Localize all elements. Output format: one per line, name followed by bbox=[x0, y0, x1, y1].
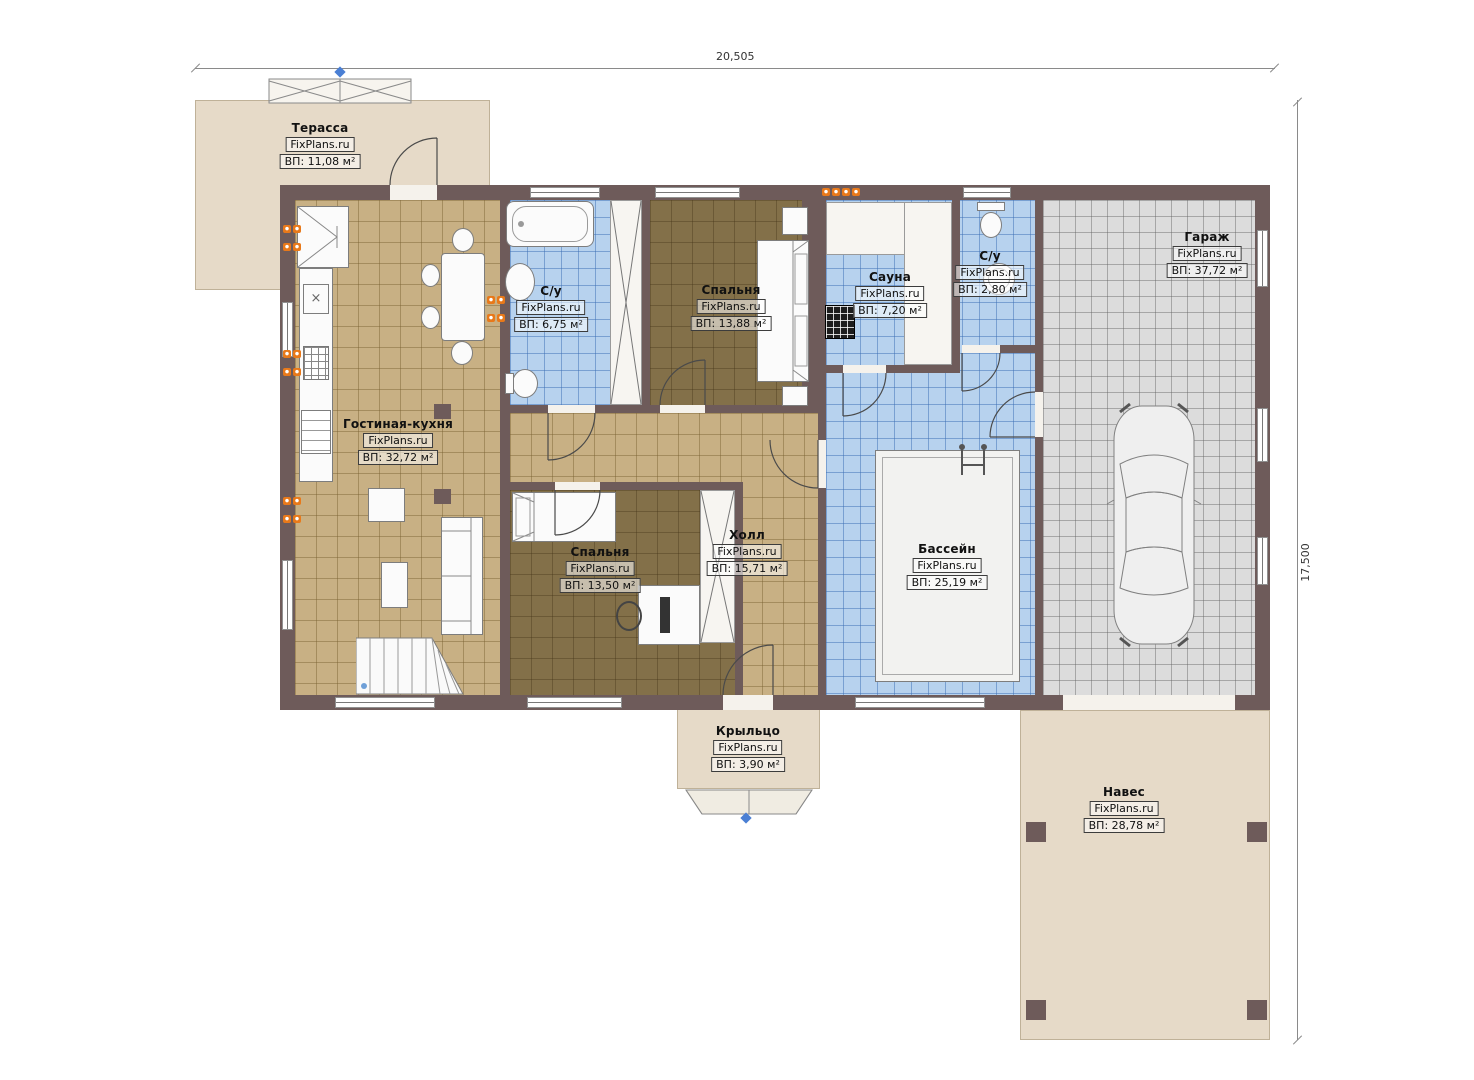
label-bathroom-small: С/у FixPlans.ru ВП: 2,80 м² bbox=[953, 250, 1027, 297]
room-name: С/у bbox=[979, 250, 1001, 263]
room-name: Спальня bbox=[571, 546, 630, 559]
room-area: ВП: 6,75 м² bbox=[514, 317, 588, 332]
room-area: ВП: 11,08 м² bbox=[280, 154, 361, 169]
outlet-marker bbox=[487, 314, 505, 322]
room-area: ВП: 37,72 м² bbox=[1167, 263, 1248, 278]
brand-tag: FixPlans.ru bbox=[516, 300, 585, 315]
brand-tag: FixPlans.ru bbox=[565, 561, 634, 576]
room-name: Терасса bbox=[292, 122, 349, 135]
outlet-marker bbox=[283, 243, 301, 251]
label-terrace: Терасса FixPlans.ru ВП: 11,08 м² bbox=[280, 122, 361, 169]
outlet-marker bbox=[283, 515, 301, 523]
label-living-kitchen: Гостиная-кухня FixPlans.ru ВП: 32,72 м² bbox=[343, 418, 453, 465]
label-pool: Бассейн FixPlans.ru ВП: 25,19 м² bbox=[907, 543, 988, 590]
room-name: Бассейн bbox=[918, 543, 976, 556]
room-area: ВП: 7,20 м² bbox=[853, 303, 927, 318]
outlet-marker bbox=[283, 368, 301, 376]
room-area: ВП: 32,72 м² bbox=[358, 450, 439, 465]
outlet-marker bbox=[487, 296, 505, 304]
brand-tag: FixPlans.ru bbox=[912, 558, 981, 573]
brand-tag: FixPlans.ru bbox=[363, 433, 432, 448]
label-sauna: Сауна FixPlans.ru ВП: 7,20 м² bbox=[853, 271, 927, 318]
room-area: ВП: 15,71 м² bbox=[707, 561, 788, 576]
label-bedroom-bottom: Спальня FixPlans.ru ВП: 13,50 м² bbox=[560, 546, 641, 593]
brand-tag: FixPlans.ru bbox=[1172, 246, 1241, 261]
label-hall: Холл FixPlans.ru ВП: 15,71 м² bbox=[707, 529, 788, 576]
outlet-marker bbox=[283, 497, 301, 505]
outlet-marker bbox=[283, 350, 301, 358]
brand-tag: FixPlans.ru bbox=[285, 137, 354, 152]
room-name: Сауна bbox=[869, 271, 911, 284]
room-name: Гараж bbox=[1184, 231, 1229, 244]
room-area: ВП: 28,78 м² bbox=[1084, 818, 1165, 833]
label-garage: Гараж FixPlans.ru ВП: 37,72 м² bbox=[1167, 231, 1248, 278]
room-name: Крыльцо bbox=[716, 725, 780, 738]
room-area: ВП: 25,19 м² bbox=[907, 575, 988, 590]
room-name: Холл bbox=[729, 529, 765, 542]
label-canopy: Навес FixPlans.ru ВП: 28,78 м² bbox=[1084, 786, 1165, 833]
label-bathroom-main: С/у FixPlans.ru ВП: 6,75 м² bbox=[514, 285, 588, 332]
room-name: С/у bbox=[540, 285, 562, 298]
room-area: ВП: 13,50 м² bbox=[560, 578, 641, 593]
room-name: Гостиная-кухня bbox=[343, 418, 453, 431]
brand-tag: FixPlans.ru bbox=[696, 299, 765, 314]
outlet-marker bbox=[842, 188, 860, 196]
label-bedroom-top: Спальня FixPlans.ru ВП: 13,88 м² bbox=[691, 284, 772, 331]
label-porch: Крыльцо FixPlans.ru ВП: 3,90 м² bbox=[711, 725, 785, 772]
outlet-marker bbox=[283, 225, 301, 233]
outlet-marker bbox=[822, 188, 840, 196]
floor-plan: 20,505 17,500 bbox=[0, 0, 1474, 1080]
room-area: ВП: 13,88 м² bbox=[691, 316, 772, 331]
brand-tag: FixPlans.ru bbox=[955, 265, 1024, 280]
brand-tag: FixPlans.ru bbox=[1089, 801, 1158, 816]
room-area: ВП: 2,80 м² bbox=[953, 282, 1027, 297]
room-area: ВП: 3,90 м² bbox=[711, 757, 785, 772]
brand-tag: FixPlans.ru bbox=[713, 740, 782, 755]
room-name: Спальня bbox=[702, 284, 761, 297]
room-name: Навес bbox=[1103, 786, 1145, 799]
brand-tag: FixPlans.ru bbox=[855, 286, 924, 301]
brand-tag: FixPlans.ru bbox=[712, 544, 781, 559]
